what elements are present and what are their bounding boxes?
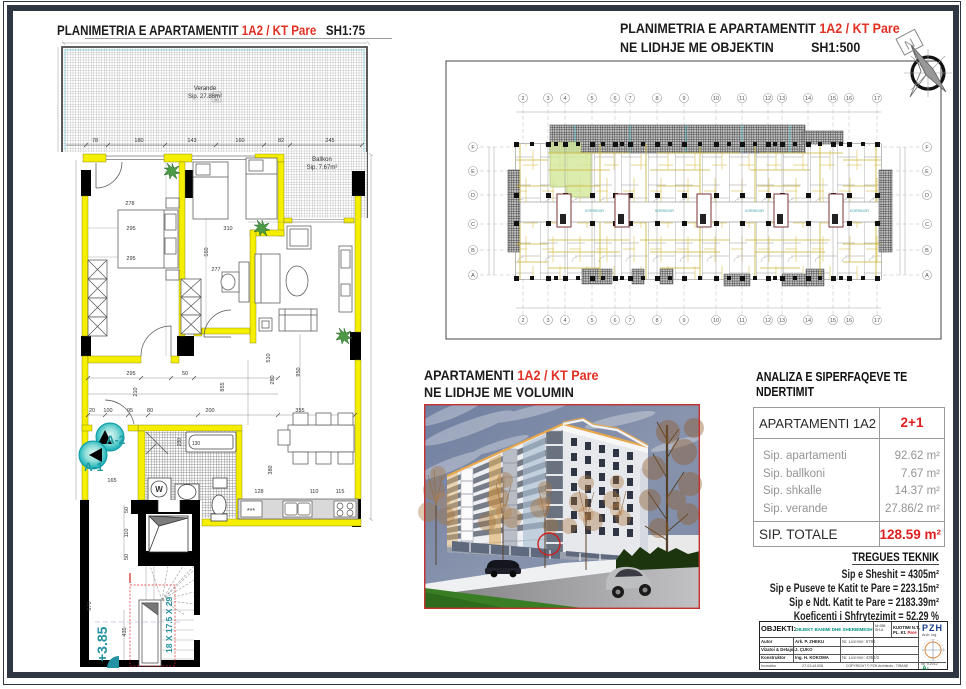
svg-text:12: 12	[765, 318, 771, 324]
svg-text:18 X 17.5 X 29: 18 X 17.5 X 29	[164, 596, 174, 653]
svg-text:12: 12	[765, 96, 771, 102]
svg-text:7: 7	[628, 318, 631, 324]
svg-text:165: 165	[107, 478, 116, 484]
svg-text:100: 100	[103, 408, 112, 414]
svg-text:16: 16	[846, 318, 852, 324]
svg-text:210: 210	[133, 387, 139, 396]
svg-text:KORRIDOR: KORRIDOR	[585, 209, 604, 213]
svg-text:3: 3	[546, 318, 549, 324]
svg-text:14: 14	[805, 318, 811, 324]
svg-text:A: A	[471, 273, 475, 279]
svg-text:180: 180	[134, 138, 143, 144]
svg-text:50: 50	[124, 554, 130, 560]
svg-text:278: 278	[125, 201, 134, 207]
svg-text:4: 4	[563, 96, 566, 102]
svg-text:KORRIDOR: KORRIDOR	[850, 209, 869, 213]
svg-text:5: 5	[590, 318, 593, 324]
svg-text:82: 82	[278, 138, 284, 144]
svg-text:Ballkon: Ballkon	[312, 157, 332, 163]
svg-text:560: 560	[204, 247, 210, 256]
svg-text:17: 17	[874, 96, 880, 102]
svg-text:143: 143	[187, 138, 196, 144]
svg-text:8: 8	[655, 96, 658, 102]
svg-text:9: 9	[682, 318, 685, 324]
svg-text:435: 435	[122, 627, 128, 636]
svg-text:KORRIDOR: KORRIDOR	[655, 209, 674, 213]
svg-text:KORRIDOR: KORRIDOR	[745, 209, 764, 213]
svg-text:277: 277	[211, 267, 220, 273]
svg-text:11: 11	[739, 96, 745, 102]
svg-text:C: C	[925, 222, 929, 228]
svg-text:E: E	[925, 169, 929, 175]
svg-text:4: 4	[563, 318, 566, 324]
svg-text:280: 280	[270, 375, 276, 384]
svg-text:11: 11	[739, 318, 745, 324]
svg-text:160: 160	[235, 138, 244, 144]
svg-text:295: 295	[126, 256, 135, 262]
svg-text:Sip. 7.67m²: Sip. 7.67m²	[307, 165, 338, 171]
svg-text:20: 20	[89, 408, 95, 414]
svg-text:310: 310	[223, 226, 232, 232]
svg-text:A-1: A-1	[84, 460, 104, 474]
svg-text:3: 3	[546, 96, 549, 102]
svg-text:245: 245	[325, 138, 334, 144]
svg-text:510: 510	[266, 353, 272, 362]
svg-text:2: 2	[521, 318, 524, 324]
svg-text:17: 17	[874, 318, 880, 324]
svg-text:5: 5	[590, 96, 593, 102]
svg-text:855: 855	[220, 382, 226, 391]
svg-text:295: 295	[126, 226, 135, 232]
svg-text:380: 380	[268, 465, 274, 474]
svg-text:13: 13	[779, 318, 785, 324]
svg-text:128: 128	[254, 489, 263, 495]
svg-text:B: B	[925, 248, 929, 254]
svg-text:15: 15	[830, 96, 836, 102]
svg-text:Verande: Verande	[194, 86, 217, 92]
svg-text:7: 7	[628, 96, 631, 102]
svg-text:50: 50	[214, 98, 218, 102]
svg-text:50: 50	[182, 371, 188, 377]
svg-text:80: 80	[147, 408, 153, 414]
svg-text:9: 9	[682, 96, 685, 102]
svg-text:670: 670	[87, 601, 93, 610]
svg-text:950: 950	[296, 367, 302, 376]
svg-text:110: 110	[124, 529, 130, 538]
svg-text:6: 6	[613, 96, 616, 102]
svg-text:W: W	[155, 485, 163, 494]
svg-text:115: 115	[336, 489, 345, 495]
svg-text:14: 14	[805, 96, 811, 102]
svg-text:6: 6	[613, 318, 616, 324]
svg-text:110: 110	[310, 489, 319, 495]
svg-text:295: 295	[126, 371, 135, 377]
svg-text:13: 13	[779, 96, 785, 102]
svg-text:+3.85: +3.85	[94, 626, 110, 662]
svg-text:50: 50	[124, 507, 130, 513]
svg-text:50: 50	[214, 94, 218, 98]
svg-text:200: 200	[205, 408, 214, 414]
svg-text:***: ***	[247, 508, 255, 515]
svg-text:8: 8	[655, 318, 658, 324]
svg-text:B: B	[471, 248, 475, 254]
svg-text:2: 2	[521, 96, 524, 102]
svg-text:78: 78	[92, 138, 98, 144]
svg-text:A: A	[925, 273, 929, 279]
svg-text:C: C	[471, 222, 475, 228]
svg-text:10: 10	[713, 96, 719, 102]
svg-text:D: D	[925, 193, 929, 199]
svg-text:10: 10	[713, 318, 719, 324]
svg-text:230: 230	[177, 438, 183, 447]
svg-text:16: 16	[846, 96, 852, 102]
svg-text:D: D	[471, 193, 475, 199]
svg-text:130: 130	[192, 441, 201, 447]
svg-text:A-2: A-2	[106, 433, 126, 447]
svg-text:E: E	[471, 169, 475, 175]
svg-text:15: 15	[830, 318, 836, 324]
